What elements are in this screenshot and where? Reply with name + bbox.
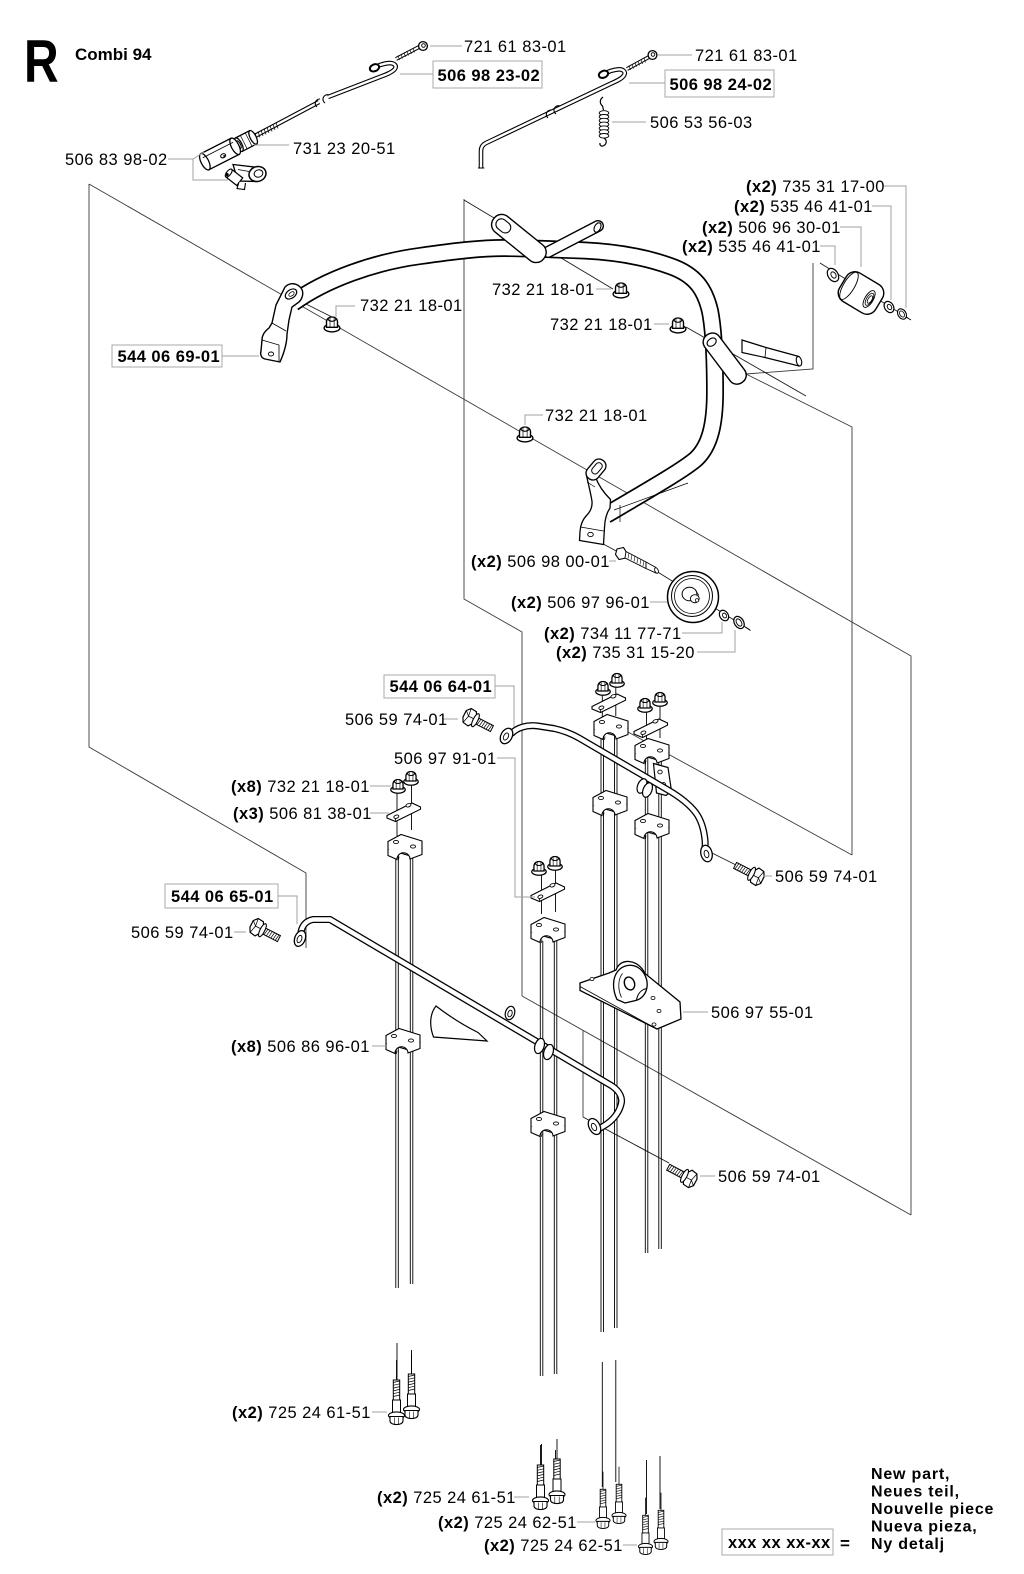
svg-text:721 61 83-01: 721 61 83-01	[695, 47, 798, 65]
svg-text:(x2) 506 96 30-01: (x2) 506 96 30-01	[702, 219, 841, 237]
svg-text:(x2) 734 11 77-71: (x2) 734 11 77-71	[544, 625, 682, 643]
svg-text:506 98 23-02: 506 98 23-02	[438, 67, 541, 85]
svg-text:(x2) 725 24 62-51: (x2) 725 24 62-51	[438, 1514, 577, 1532]
svg-text:New part,: New part,	[871, 1466, 950, 1483]
svg-text:544 06 65-01: 544 06 65-01	[171, 888, 274, 906]
svg-text:(x2) 506 97 96-01: (x2) 506 97 96-01	[511, 594, 650, 612]
svg-text:721 61 83-01: 721 61 83-01	[464, 38, 567, 56]
svg-text:R: R	[24, 28, 59, 95]
svg-text:(x2) 506 98 00-01: (x2) 506 98 00-01	[471, 553, 610, 571]
svg-text:506 59 74-01: 506 59 74-01	[131, 924, 234, 942]
svg-text:732 21 18-01: 732 21 18-01	[550, 316, 653, 334]
svg-text:506 59 74-01: 506 59 74-01	[775, 868, 878, 886]
svg-text:732 21 18-01: 732 21 18-01	[492, 281, 595, 299]
svg-text:Nueva pieza,: Nueva pieza,	[871, 1519, 978, 1536]
svg-text:=: =	[840, 1534, 850, 1553]
svg-text:Neues teil,: Neues teil,	[871, 1484, 960, 1501]
svg-text:(x3) 506 81 38-01: (x3) 506 81 38-01	[233, 805, 372, 823]
svg-text:Nouvelle piece: Nouvelle piece	[871, 1501, 994, 1518]
svg-text:(x8) 732 21 18-01: (x8) 732 21 18-01	[231, 778, 370, 796]
svg-text:544 06 64-01: 544 06 64-01	[390, 678, 493, 696]
svg-text:(x8) 506 86 96-01: (x8) 506 86 96-01	[231, 1038, 370, 1056]
svg-text:506 59 74-01: 506 59 74-01	[718, 1168, 821, 1186]
svg-text:Combi 94: Combi 94	[75, 45, 152, 64]
svg-text:732 21 18-01: 732 21 18-01	[545, 407, 648, 425]
svg-text:(x2) 735 31 17-00: (x2) 735 31 17-00	[746, 178, 885, 196]
svg-text:731 23 20-51: 731 23 20-51	[293, 140, 396, 158]
svg-text:(x2) 535 46 41-01: (x2) 535 46 41-01	[734, 198, 873, 216]
svg-text:xxx xx xx-xx: xxx xx xx-xx	[728, 1534, 831, 1552]
svg-text:506 97 91-01: 506 97 91-01	[394, 750, 497, 768]
svg-text:506 53 56-03: 506 53 56-03	[650, 114, 753, 132]
svg-text:(x2) 725 24 62-51: (x2) 725 24 62-51	[484, 1537, 623, 1555]
svg-text:(x2) 535 46 41-01: (x2) 535 46 41-01	[682, 238, 821, 256]
svg-text:Ny detalj: Ny detalj	[871, 1536, 945, 1553]
svg-text:(x2) 725 24 61-51: (x2) 725 24 61-51	[377, 1489, 516, 1507]
svg-text:506 59 74-01: 506 59 74-01	[345, 711, 448, 729]
svg-text:(x2) 725 24 61-51: (x2) 725 24 61-51	[232, 1404, 371, 1422]
svg-text:732 21 18-01: 732 21 18-01	[360, 297, 463, 315]
svg-text:544 06 69-01: 544 06 69-01	[118, 348, 221, 366]
svg-text:506 98 24-02: 506 98 24-02	[670, 76, 773, 94]
svg-text:506 97 55-01: 506 97 55-01	[711, 1004, 814, 1022]
svg-text:(x2) 735 31 15-20: (x2) 735 31 15-20	[556, 644, 695, 662]
svg-text:506 83 98-02: 506 83 98-02	[65, 151, 168, 169]
